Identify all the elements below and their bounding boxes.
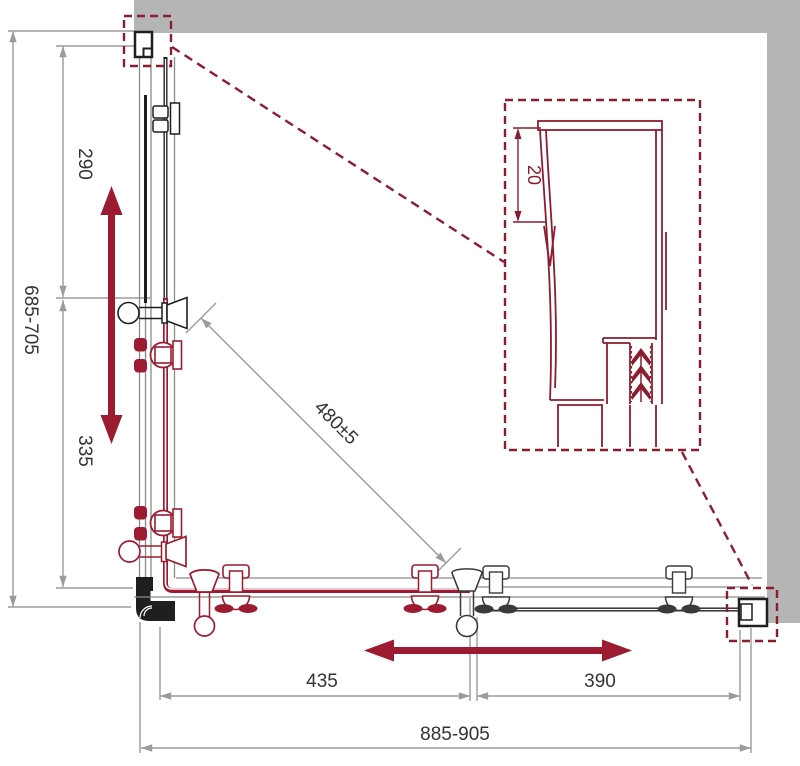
door-handle-bottom [452, 569, 482, 637]
slide-direction-arrow-horizontal-icon [364, 640, 632, 662]
bottom-roller-assembly-gray-2 [658, 566, 701, 614]
dim-label-bottom-right: 390 [584, 671, 616, 692]
dimension-bottom-total: 885-905 [140, 622, 751, 753]
dimension-diagonal: 480±5 [186, 303, 461, 578]
dim-label-bottom-left: 435 [306, 671, 338, 692]
dim-label-detail-depth: 20 [524, 165, 544, 185]
dim-label-left-total: 685-705 [20, 285, 41, 355]
corner-connector-bracket [136, 577, 175, 621]
wall-right [767, 33, 800, 623]
dimension-left-total: 685-705 [8, 31, 134, 607]
detail-callout-top-left [124, 16, 504, 262]
dimension-left-upper: 290 [56, 46, 150, 298]
adjustment-knob-bottom-red [190, 570, 219, 636]
dim-label-bottom-total: 885-905 [420, 724, 490, 745]
left-sliding-door-glass [166, 57, 471, 591]
right-wall-profile-bracket [739, 599, 767, 626]
shower-enclosure-plan-drawing: 685-705 290 335 435 390 885-905 480±5 [0, 0, 800, 761]
bottom-track-lines [134, 578, 765, 597]
adjustment-knob-left-low [119, 537, 186, 567]
technical-drawing-page: 685-705 290 335 435 390 885-905 480±5 [0, 0, 800, 761]
left-roller-assembly-mid [134, 338, 182, 373]
detail-view-profile-section: 20 [505, 100, 700, 450]
seal-fir-tree-icon [632, 348, 650, 402]
top-roller-assembly [153, 103, 180, 134]
dim-label-left-upper: 290 [74, 148, 95, 180]
door-handle-left [118, 298, 187, 329]
dim-label-diagonal: 480±5 [310, 397, 362, 449]
top-wall-profile-bracket [135, 32, 152, 57]
dimension-detail-depth: 20 [513, 128, 547, 222]
left-roller-assembly-low [134, 506, 182, 541]
wall-top [134, 0, 800, 33]
dim-label-left-lower: 335 [74, 435, 95, 467]
